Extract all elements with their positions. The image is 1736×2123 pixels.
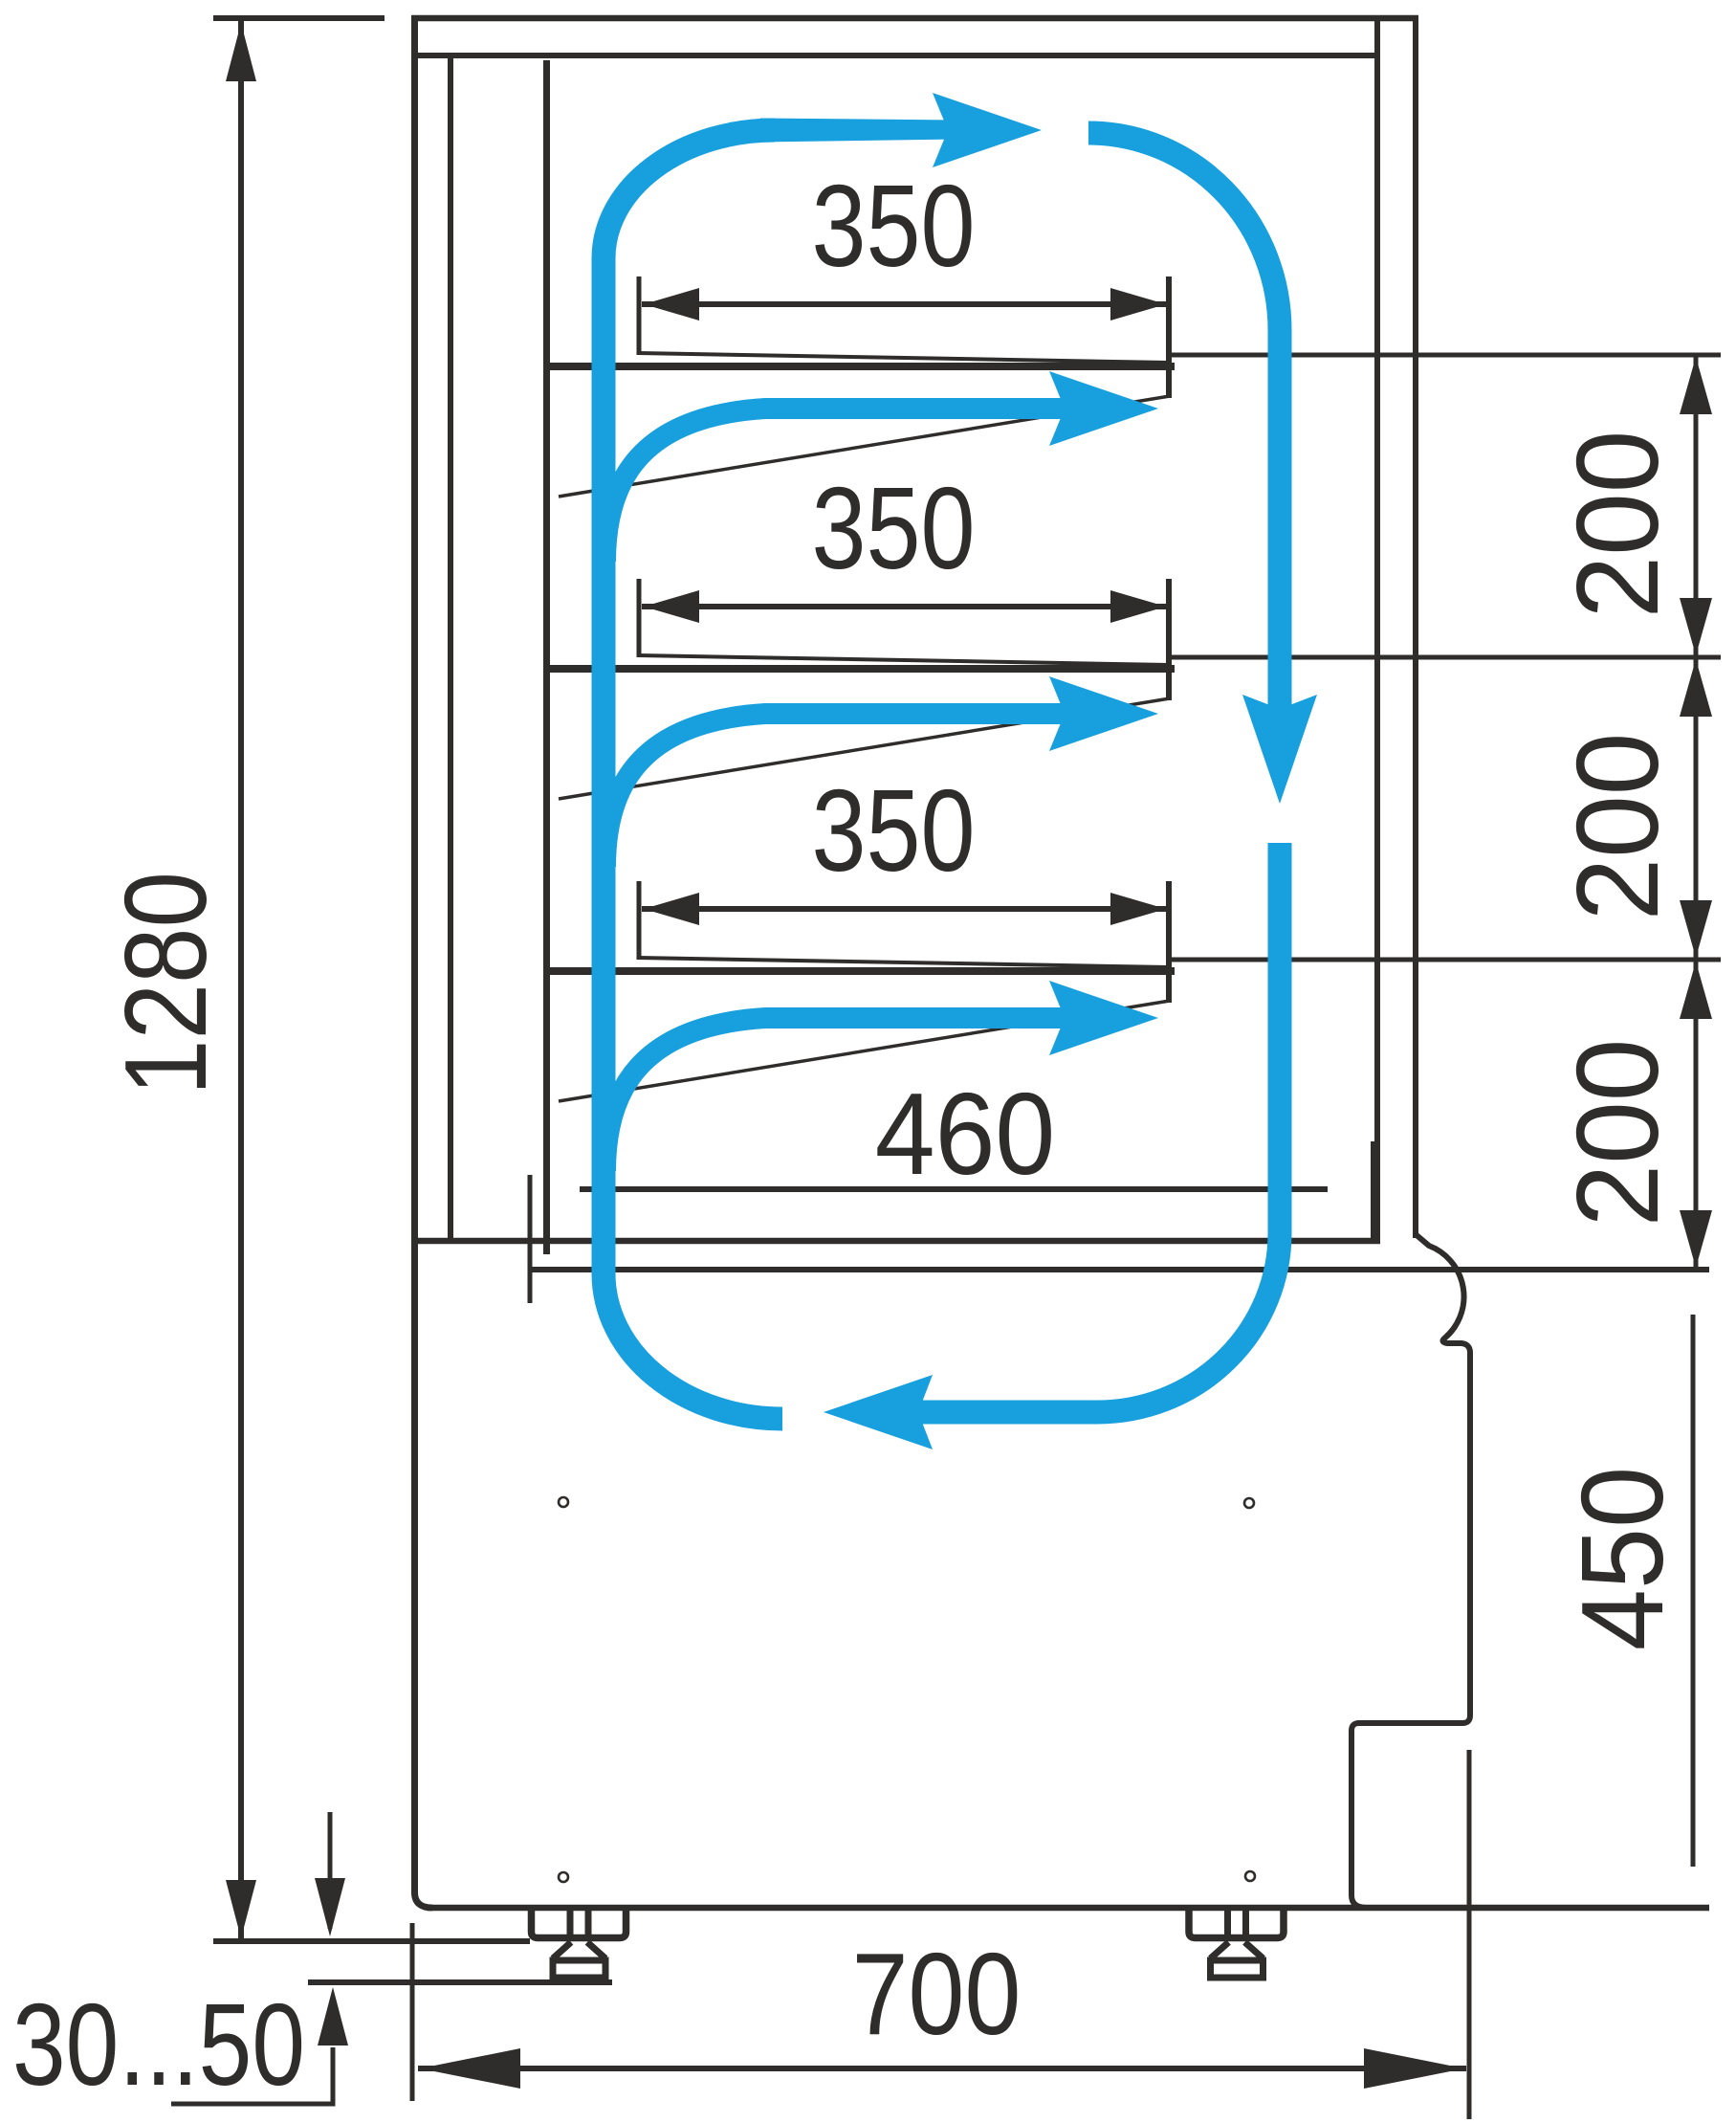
svg-text:200: 200 <box>1552 1039 1682 1227</box>
svg-text:460: 460 <box>875 1069 1055 1199</box>
svg-text:350: 350 <box>812 161 976 291</box>
svg-text:350: 350 <box>812 765 976 896</box>
svg-text:1280: 1280 <box>101 872 231 1095</box>
svg-text:200: 200 <box>1552 431 1682 619</box>
svg-text:350: 350 <box>812 463 976 593</box>
svg-text:700: 700 <box>852 1930 1022 2060</box>
svg-text:450: 450 <box>1557 1467 1688 1651</box>
svg-text:30...50: 30...50 <box>12 1979 305 2111</box>
svg-text:200: 200 <box>1552 733 1682 921</box>
